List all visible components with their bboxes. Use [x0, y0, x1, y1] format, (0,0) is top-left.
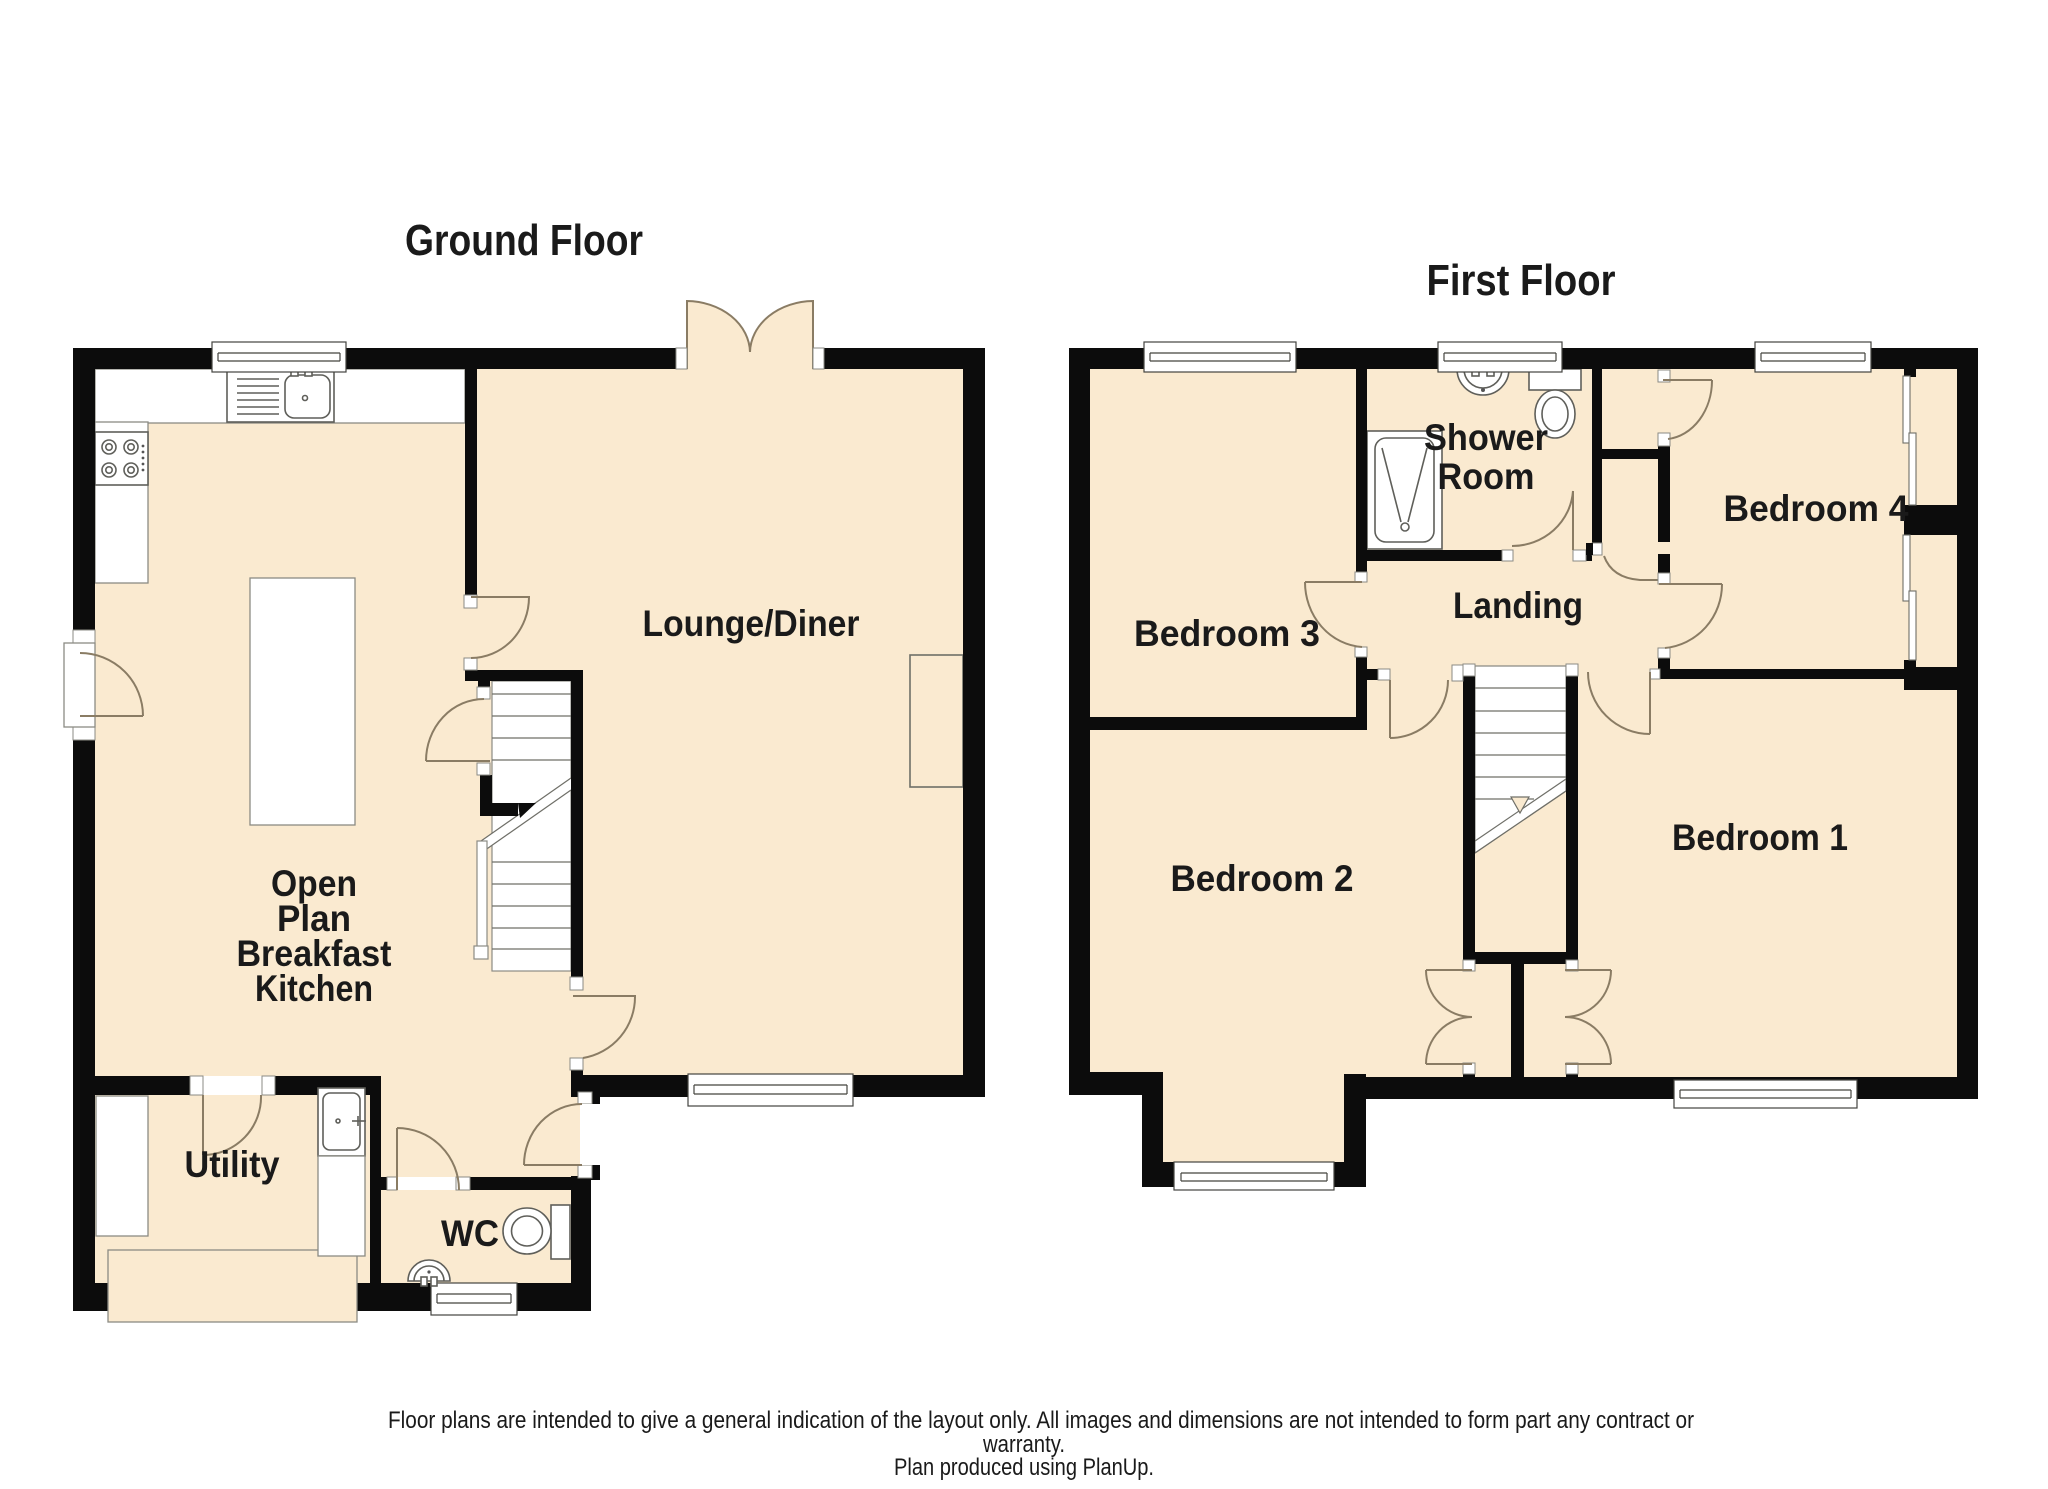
svg-text:Landing: Landing [1453, 585, 1583, 626]
svg-text:Floor plans are intended to gi: Floor plans are intended to give a gener… [388, 1407, 1694, 1434]
svg-text:Bedroom 3: Bedroom 3 [1134, 613, 1320, 654]
svg-text:Plan produced using PlanUp.: Plan produced using PlanUp. [894, 1454, 1154, 1481]
svg-text:First Floor: First Floor [1427, 256, 1616, 305]
svg-text:Shower: Shower [1424, 417, 1548, 458]
svg-text:Utility: Utility [185, 1144, 280, 1185]
svg-text:WC: WC [441, 1213, 499, 1254]
svg-text:Bedroom 2: Bedroom 2 [1171, 858, 1354, 899]
svg-text:Room: Room [1438, 456, 1535, 497]
svg-text:Bedroom 1: Bedroom 1 [1672, 817, 1848, 858]
svg-text:Bedroom 4: Bedroom 4 [1724, 488, 1909, 529]
svg-text:Kitchen: Kitchen [255, 968, 373, 1009]
svg-text:Ground Floor: Ground Floor [405, 216, 643, 265]
svg-text:Lounge/Diner: Lounge/Diner [643, 603, 860, 644]
